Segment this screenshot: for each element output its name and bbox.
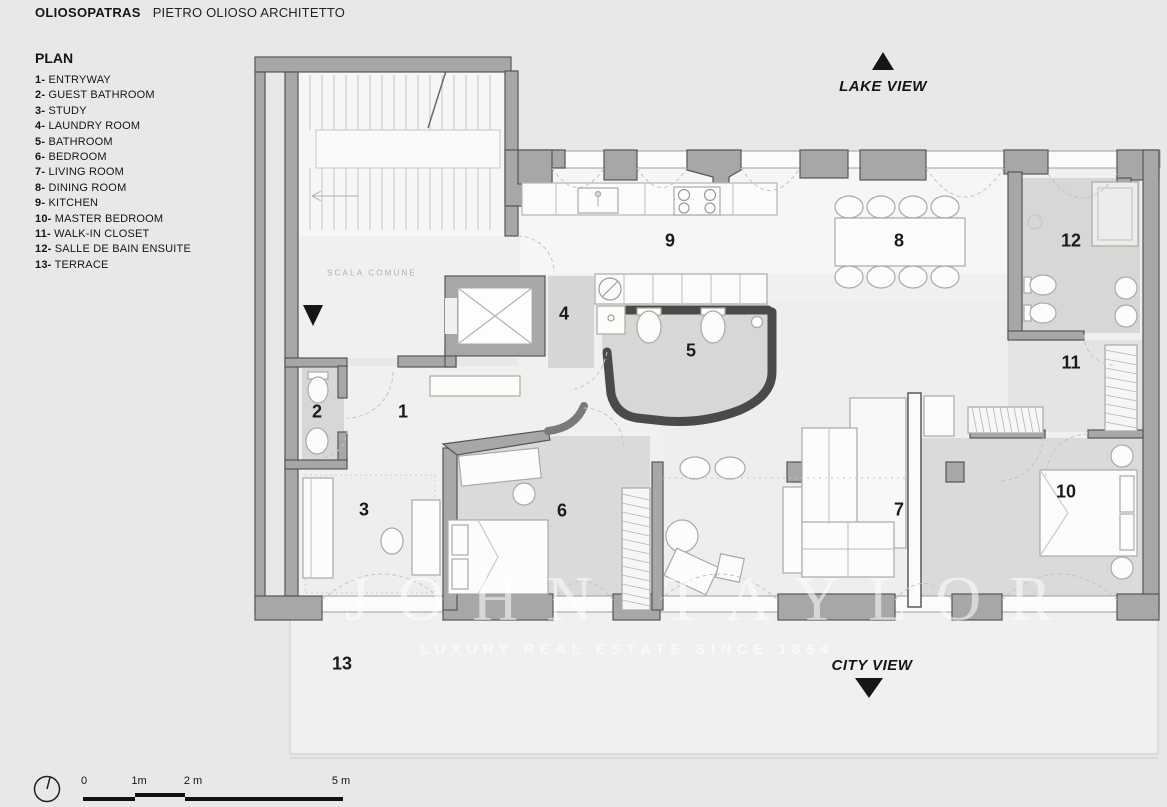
round-table [666,520,698,552]
column [946,462,964,482]
legend-item-label: TERRACE [55,259,109,271]
legend-item-label: LIVING ROOM [48,166,124,178]
chair [899,266,927,288]
legend-item-number: 2- [35,89,45,101]
legend-item: 7- LIVING ROOM [35,165,191,180]
legend-item-number: 1- [35,74,45,86]
shower [1092,182,1138,246]
sink [306,428,328,454]
chair [835,266,863,288]
wardrobe [968,407,1043,433]
toilet [1030,275,1056,295]
legend-item-number: 7- [35,166,45,178]
nightstand [1111,445,1133,467]
lake-view-label: LAKE VIEW [839,78,927,95]
legend-item: 5- BATHROOM [35,135,191,150]
legend-item-number: 13- [35,259,52,271]
legend-item: 3- STUDY [35,104,191,119]
room-number-label: 5 [686,341,696,362]
scale-label: 0 [81,775,87,787]
room-number-label: 9 [665,231,675,252]
desk-chair [381,528,403,554]
legend-item-label: SALLE DE BAIN ENSUITE [55,243,191,255]
legend-item-label: MASTER BEDROOM [55,213,164,225]
chair [835,196,863,218]
legend-item-number: 8- [35,182,45,194]
legend-item-label: LAUNDRY ROOM [48,120,140,132]
chair [931,196,959,218]
stair-hall-label: SCALA COMUNE [327,269,417,278]
chair [867,196,895,218]
chair [513,483,535,505]
room-number-label: 3 [359,500,369,521]
legend-item-label: WALK-IN CLOSET [54,228,149,240]
scale-segment [83,797,135,801]
legend-item-number: 5- [35,136,45,148]
room-number-label: 1 [398,402,408,423]
legend-item: 1- ENTRYWAY [35,73,191,88]
bidet [1030,303,1056,323]
chair [867,266,895,288]
legend-item: 13- TERRACE [35,258,191,273]
room-number-label: 2 [312,402,322,423]
legend-item-label: KITCHEN [48,197,98,209]
scale-segment [185,797,343,801]
floor-plan-page: OLIOSOPATRASPIETRO OLIOSO ARCHITETTO PLA… [0,0,1167,807]
pouf [680,457,710,479]
chair [931,266,959,288]
right-outer-wall [1143,150,1159,612]
legend-item: 2- GUEST BATHROOM [35,88,191,103]
legend-item: 6- BEDROOM [35,150,191,165]
armchair [924,396,954,436]
sink [1115,305,1137,327]
architect-name: PIETRO OLIOSO ARCHITETTO [153,5,345,20]
legend-item-label: BATHROOM [48,136,112,148]
room4-floor [548,276,594,368]
legend-item-label: ENTRYWAY [48,74,111,86]
lake-view-arrow-icon [872,52,894,70]
legend-item: 9- KITCHEN [35,196,191,211]
city-view-label: CITY VIEW [832,657,913,674]
legend-item: 11- WALK-IN CLOSET [35,227,191,242]
legend-item: 8- DINING ROOM [35,181,191,196]
legend-item-number: 9- [35,197,45,209]
watermark-title: JOHN TAYLOR [345,562,1080,636]
nightstand [1111,557,1133,579]
legend-item-number: 12- [35,243,52,255]
room-number-label: 8 [894,231,904,252]
legend-item-number: 3- [35,105,45,117]
pouf [715,457,745,479]
room-number-label: 12 [1061,231,1081,252]
toilet [308,377,328,403]
toilet [637,311,661,343]
console-table [430,376,520,396]
column [787,462,802,482]
sink [1115,277,1137,299]
legend-item-label: BEDROOM [48,151,106,163]
scale-segment [135,793,185,797]
bidet [701,311,725,343]
room-number-label: 11 [1061,353,1080,374]
chair [899,196,927,218]
legend-item-label: DINING ROOM [48,182,126,194]
brand-name: OLIOSOPATRAS [35,5,141,20]
legend-item: 4- LAUNDRY ROOM [35,119,191,134]
room-number-label: 10 [1056,482,1076,503]
legend-item-number: 6- [35,151,45,163]
room-number-label: 7 [894,500,904,521]
room-number-label: 13 [332,654,352,675]
legend-item-number: 11- [35,228,51,240]
legend-title: PLAN [35,50,191,66]
legend-item-number: 10- [35,213,52,225]
scale-label: 5 m [332,775,350,787]
legend-item-label: GUEST BATHROOM [48,89,154,101]
sofa [303,478,333,578]
scale-label: 1m [131,775,146,787]
legend-list: 1- ENTRYWAY 2- GUEST BATHROOM 3- STUDY 4… [35,73,191,273]
room-number-label: 6 [557,501,567,522]
scale-label: 2 m [184,775,202,787]
legend-item: 10- MASTER BEDROOM [35,212,191,227]
legend-item: 12- SALLE DE BAIN ENSUITE [35,242,191,257]
sofa-back [783,487,802,573]
header: OLIOSOPATRASPIETRO OLIOSO ARCHITETTO [35,5,345,20]
city-view-arrow-icon [855,678,883,698]
watermark-subtitle: LUXURY REAL ESTATE SINCE 1864 [420,641,834,658]
legend-item-number: 4- [35,120,45,132]
legend-item-label: STUDY [48,105,86,117]
compass-icon [33,774,63,806]
room-number-label: 4 [559,304,569,325]
elevator [445,276,545,356]
legend: PLAN 1- ENTRYWAY 2- GUEST BATHROOM 3- ST… [35,50,191,273]
